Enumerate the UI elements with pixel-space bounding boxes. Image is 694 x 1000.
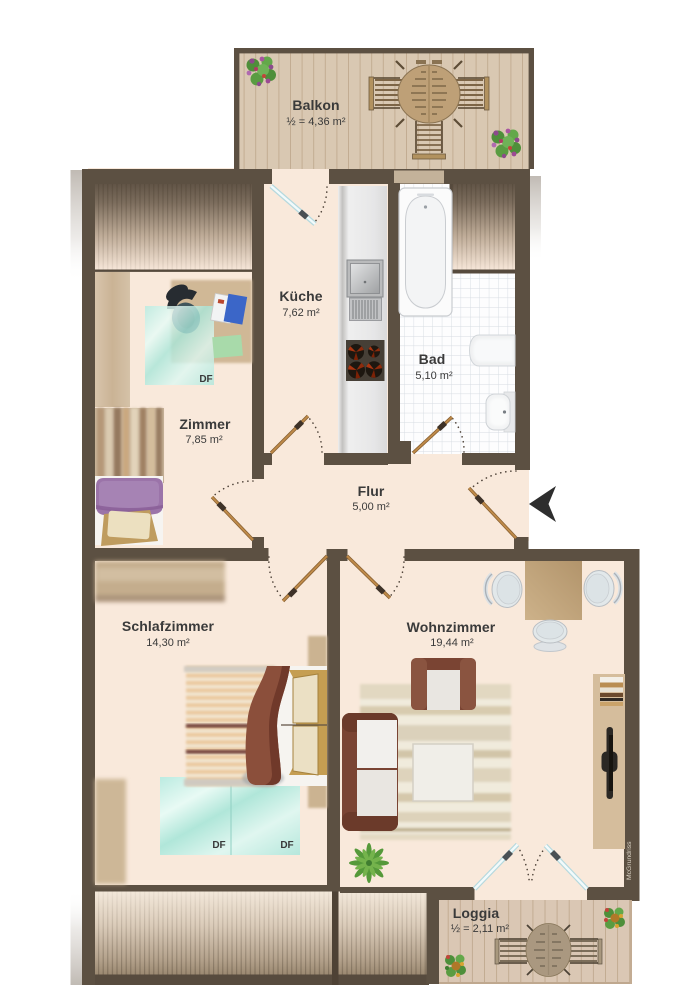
svg-text:14,30 m²: 14,30 m² bbox=[146, 637, 190, 649]
svg-text:Küche: Küche bbox=[279, 288, 322, 304]
svg-text:5,10 m²: 5,10 m² bbox=[415, 370, 453, 382]
svg-text:Bad: Bad bbox=[419, 351, 446, 367]
svg-text:Balkon: Balkon bbox=[292, 97, 339, 113]
svg-text:½ = 4,36 m²: ½ = 4,36 m² bbox=[286, 116, 345, 128]
svg-text:Zimmer: Zimmer bbox=[179, 416, 231, 432]
svg-text:5,00 m²: 5,00 m² bbox=[352, 501, 390, 513]
svg-text:McGrundriss: McGrundriss bbox=[626, 841, 633, 880]
svg-text:19,44 m²: 19,44 m² bbox=[430, 637, 474, 649]
svg-text:Schlafzimmer: Schlafzimmer bbox=[122, 618, 215, 634]
svg-text:7,85 m²: 7,85 m² bbox=[185, 434, 223, 446]
svg-text:DF: DF bbox=[212, 840, 225, 851]
svg-text:Loggia: Loggia bbox=[453, 905, 500, 921]
svg-text:DF: DF bbox=[199, 374, 212, 385]
svg-text:Wohnzimmer: Wohnzimmer bbox=[407, 619, 496, 635]
svg-text:7,62 m²: 7,62 m² bbox=[282, 307, 320, 319]
svg-text:½ = 2,11 m²: ½ = 2,11 m² bbox=[451, 923, 510, 935]
svg-text:Flur: Flur bbox=[358, 483, 385, 499]
svg-text:DF: DF bbox=[280, 840, 293, 851]
